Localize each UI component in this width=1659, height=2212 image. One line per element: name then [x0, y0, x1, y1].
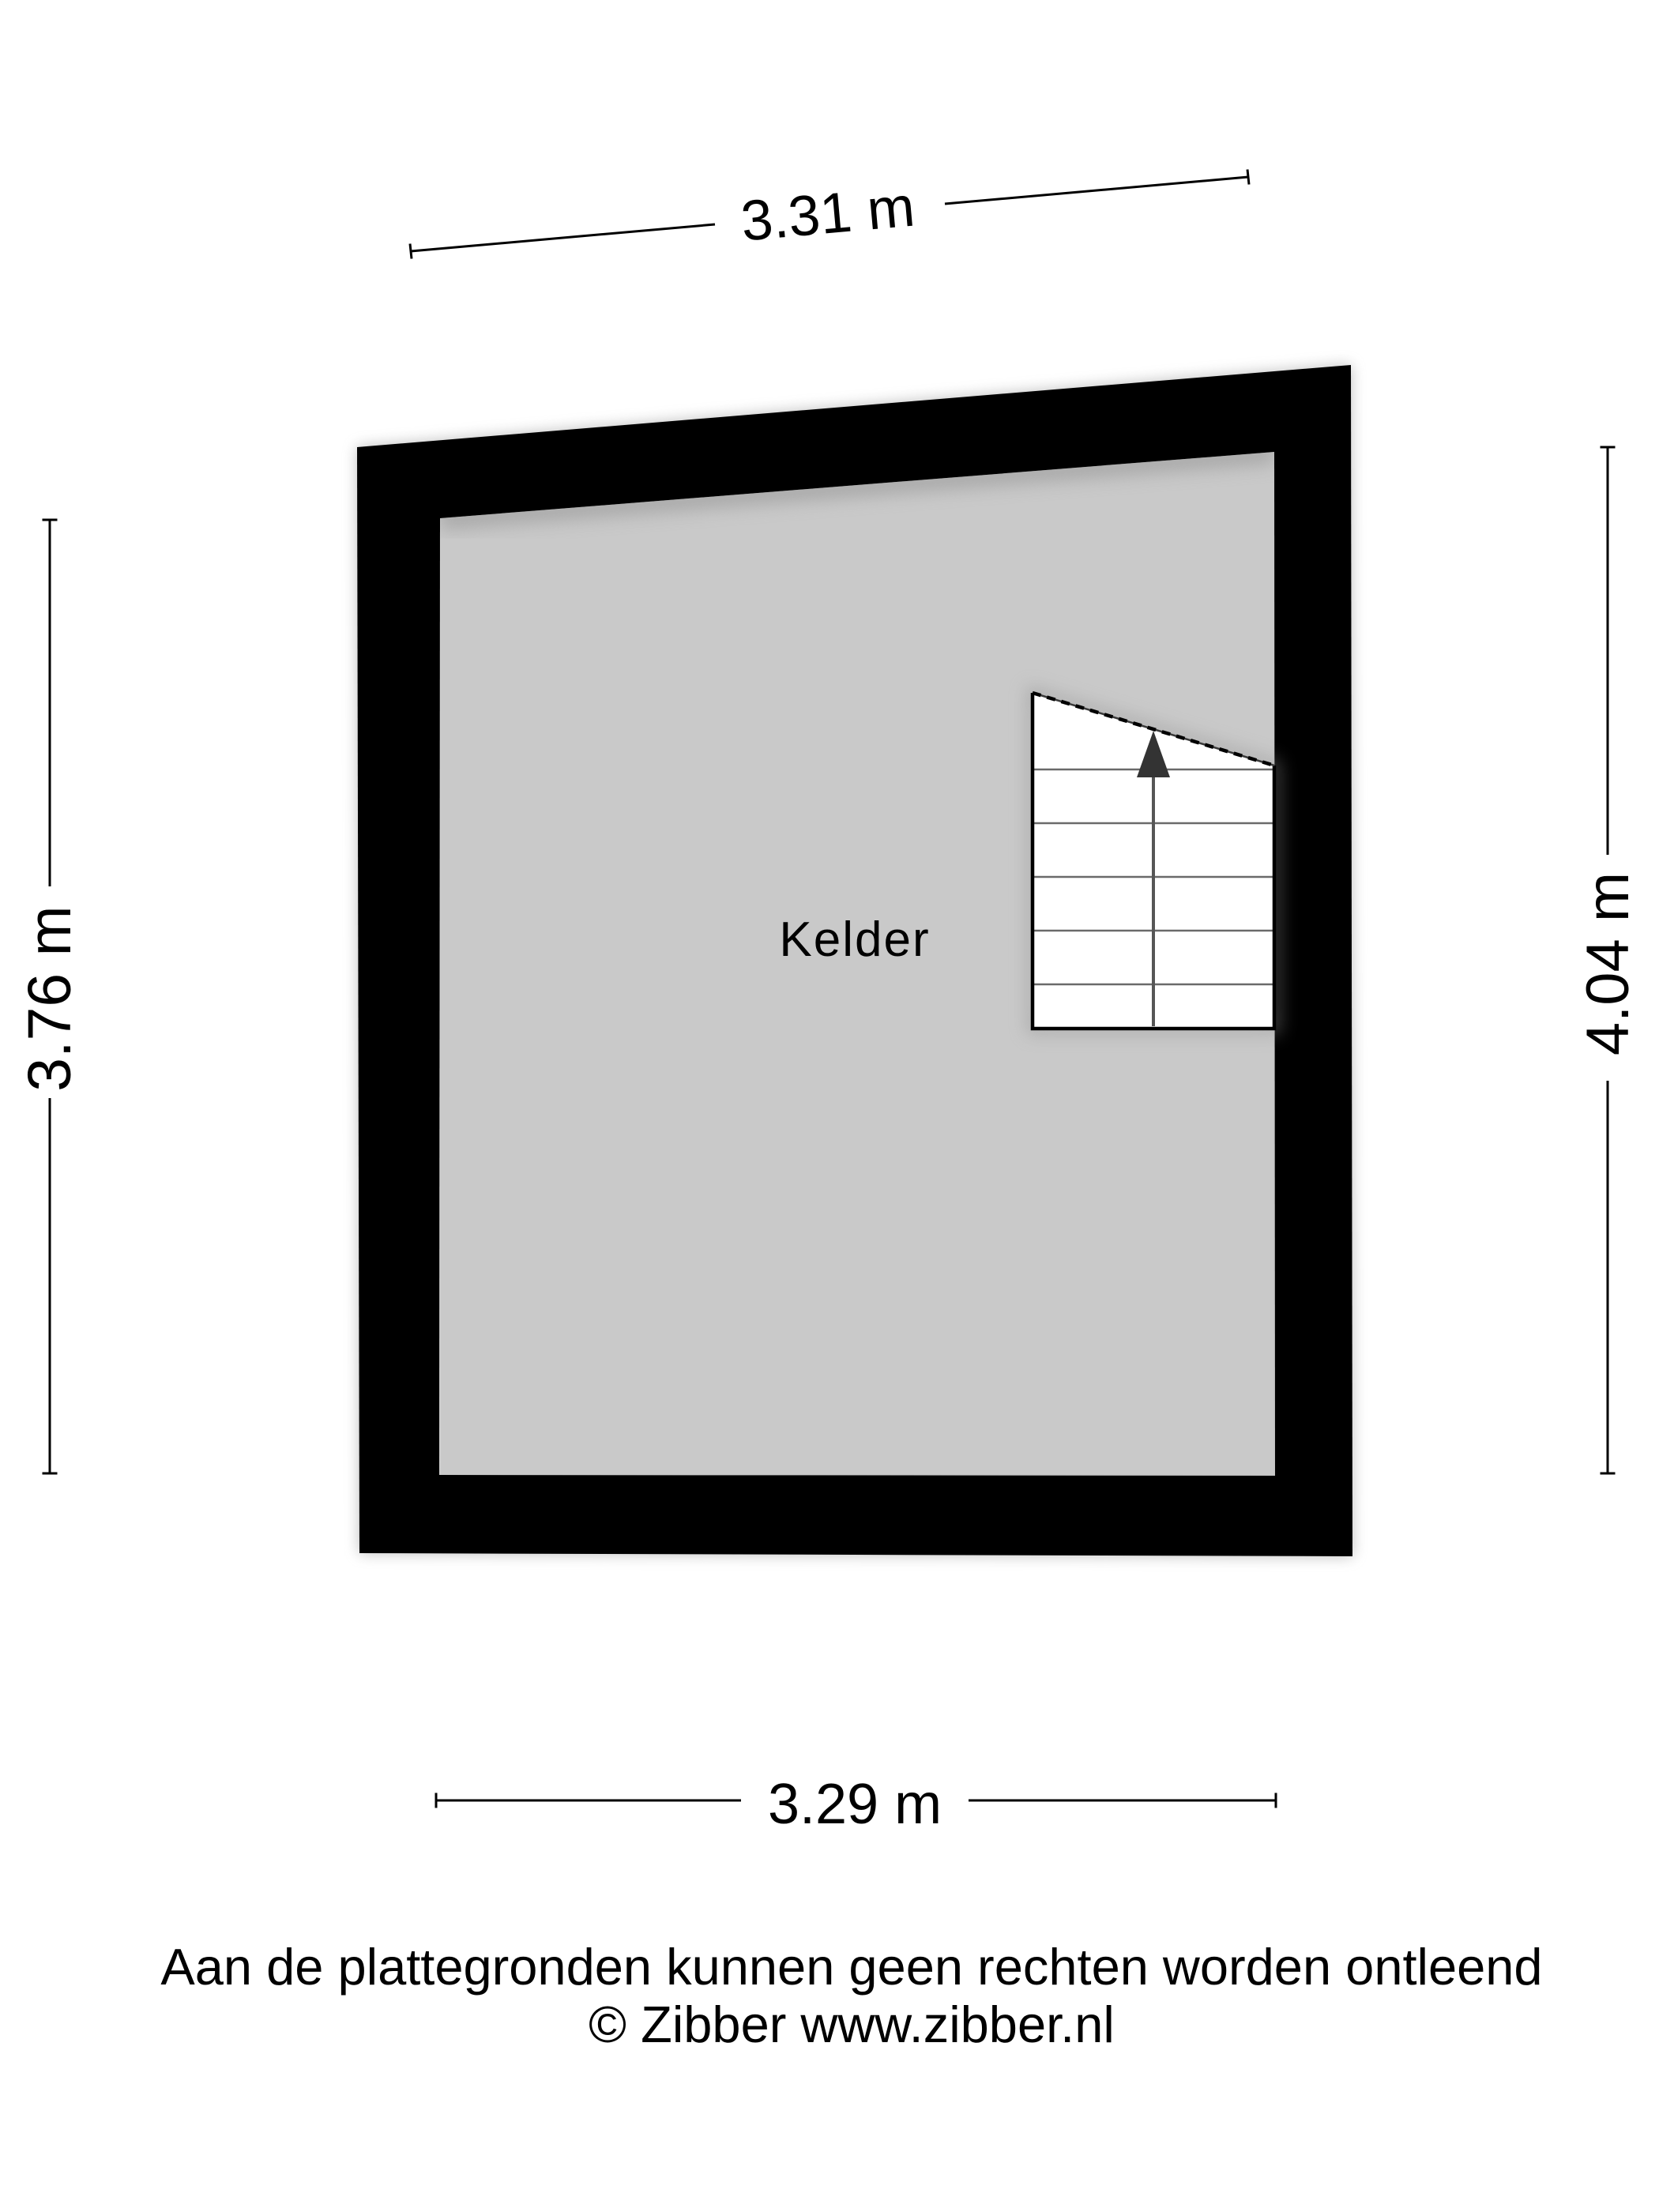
- svg-text:3.76 m: 3.76 m: [16, 905, 84, 1091]
- svg-text:4.04 m: 4.04 m: [1574, 872, 1642, 1055]
- svg-text:Kelder: Kelder: [779, 912, 930, 967]
- svg-text:Aan de plattegronden kunnen ge: Aan de plattegronden kunnen geen rechten…: [160, 1938, 1542, 1996]
- svg-text:© Zibber www.zibber.nl: © Zibber www.zibber.nl: [589, 1996, 1115, 2053]
- svg-text:3.29 m: 3.29 m: [768, 1773, 942, 1836]
